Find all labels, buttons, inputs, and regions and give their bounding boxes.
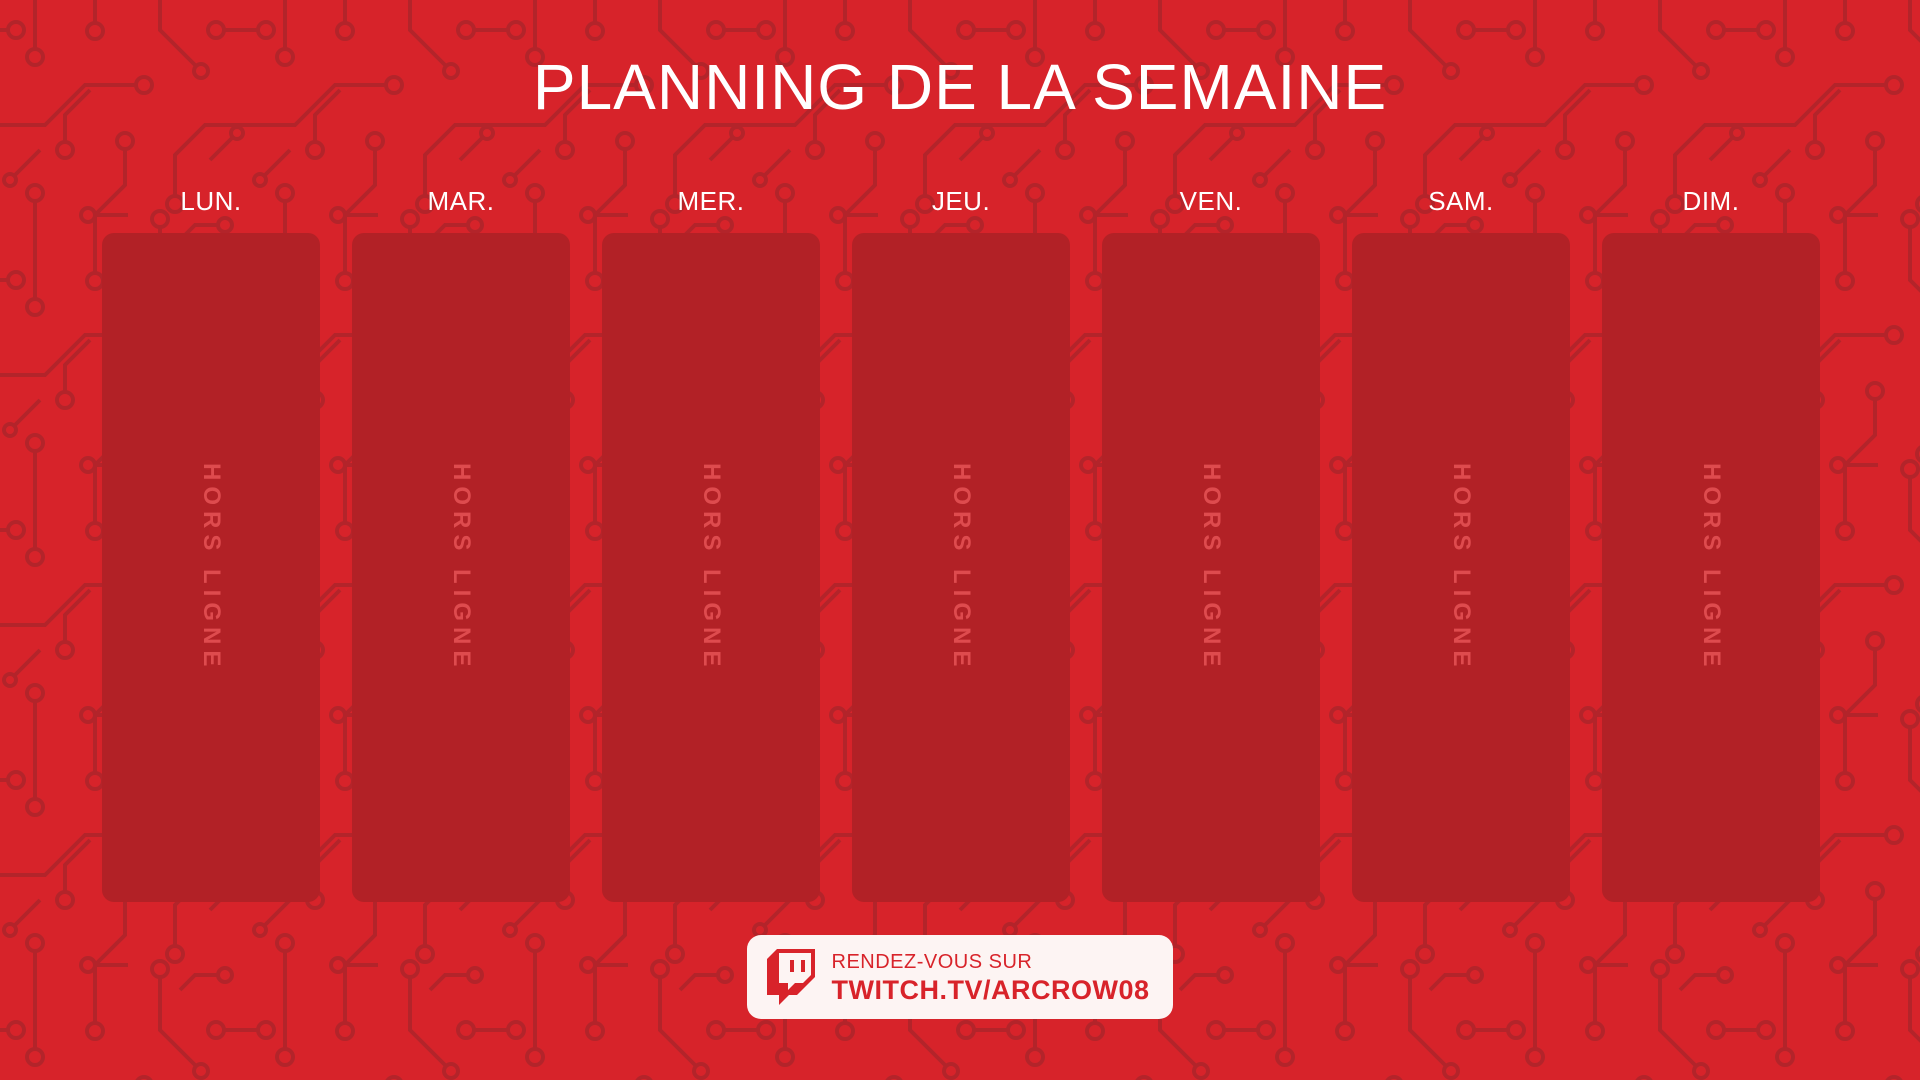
day-label: SAM. [1352,186,1570,216]
offline-status-label: HORS LIGNE [447,463,475,672]
schedule-card: HORS LIGNE [602,233,820,902]
day-column-friday: VEN. HORS LIGNE [1102,186,1320,902]
offline-status-label: HORS LIGNE [1697,463,1725,672]
schedule-card: HORS LIGNE [1602,233,1820,902]
day-label: LUN. [102,186,320,216]
offline-status-label: HORS LIGNE [1197,463,1225,672]
day-column-sunday: DIM. HORS LIGNE [1602,186,1820,902]
day-label: JEU. [852,186,1070,216]
day-label: MAR. [352,186,570,216]
day-column-saturday: SAM. HORS LIGNE [1352,186,1570,902]
day-column-wednesday: MER. HORS LIGNE [602,186,820,902]
week-columns: LUN. HORS LIGNE MAR. HORS LIGNE MER. HOR… [102,186,1820,902]
day-label: MER. [602,186,820,216]
schedule-screen: PLANNING DE LA SEMAINE LUN. HORS LIGNE M… [0,0,1920,1080]
day-column-thursday: JEU. HORS LIGNE [852,186,1070,902]
badge-text: RENDEZ-VOUS SUR TWITCH.TV/ARCROW08 [832,949,1150,1005]
offline-status-label: HORS LIGNE [1447,463,1475,672]
schedule-card: HORS LIGNE [1352,233,1570,902]
offline-status-label: HORS LIGNE [697,463,725,672]
day-label: DIM. [1602,186,1820,216]
footer: RENDEZ-VOUS SUR TWITCH.TV/ARCROW08 [0,935,1920,1019]
schedule-card: HORS LIGNE [352,233,570,902]
schedule-card: HORS LIGNE [1102,233,1320,902]
page-title: PLANNING DE LA SEMAINE [0,52,1920,122]
day-column-tuesday: MAR. HORS LIGNE [352,186,570,902]
offline-status-label: HORS LIGNE [197,463,225,672]
schedule-card: HORS LIGNE [102,233,320,902]
offline-status-label: HORS LIGNE [947,463,975,672]
twitch-channel-url[interactable]: TWITCH.TV/ARCROW08 [832,975,1150,1005]
badge-tagline: RENDEZ-VOUS SUR [832,949,1150,975]
twitch-logo-icon [767,949,815,1005]
schedule-card: HORS LIGNE [852,233,1070,902]
day-label: VEN. [1102,186,1320,216]
day-column-monday: LUN. HORS LIGNE [102,186,320,902]
twitch-channel-badge[interactable]: RENDEZ-VOUS SUR TWITCH.TV/ARCROW08 [747,935,1174,1019]
